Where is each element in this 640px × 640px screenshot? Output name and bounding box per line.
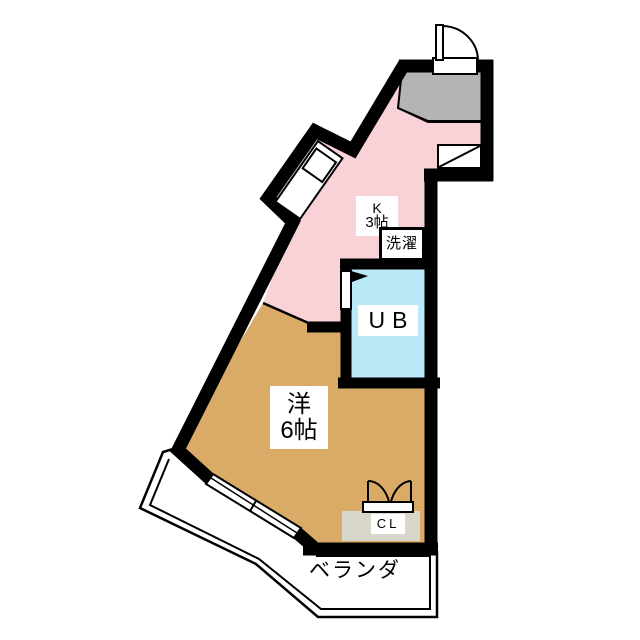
unit-bath-label: UB (358, 305, 418, 336)
veranda-label: ベランダ (293, 556, 417, 586)
kitchen-label-text: K (372, 201, 381, 216)
entrance-door (433, 25, 478, 74)
veranda-label-text: ベランダ (309, 560, 401, 582)
entrance-door-leaf (436, 25, 443, 60)
laundry-label-text: 洗濯 (386, 236, 418, 252)
laundry-label: 洗濯 (379, 227, 425, 261)
ub-door-leaf (341, 271, 351, 309)
closet-label: CL (371, 514, 405, 534)
floorplan-drawing (0, 0, 640, 640)
shoe-cabinet (438, 145, 481, 168)
floorplan-canvas: K 3帖 洗濯 UB 洋 6帖 CL ベランダ (0, 0, 640, 640)
western-room-label-text: 洋 (287, 392, 311, 417)
western-room-size-text: 6帖 (280, 418, 317, 443)
unit-bath-label-text: UB (362, 308, 415, 332)
closet-threshold (363, 502, 413, 512)
entrance-door-arc (443, 26, 478, 61)
western-room-label: 洋 6帖 (270, 386, 328, 449)
closet-label-text: CL (377, 517, 400, 531)
